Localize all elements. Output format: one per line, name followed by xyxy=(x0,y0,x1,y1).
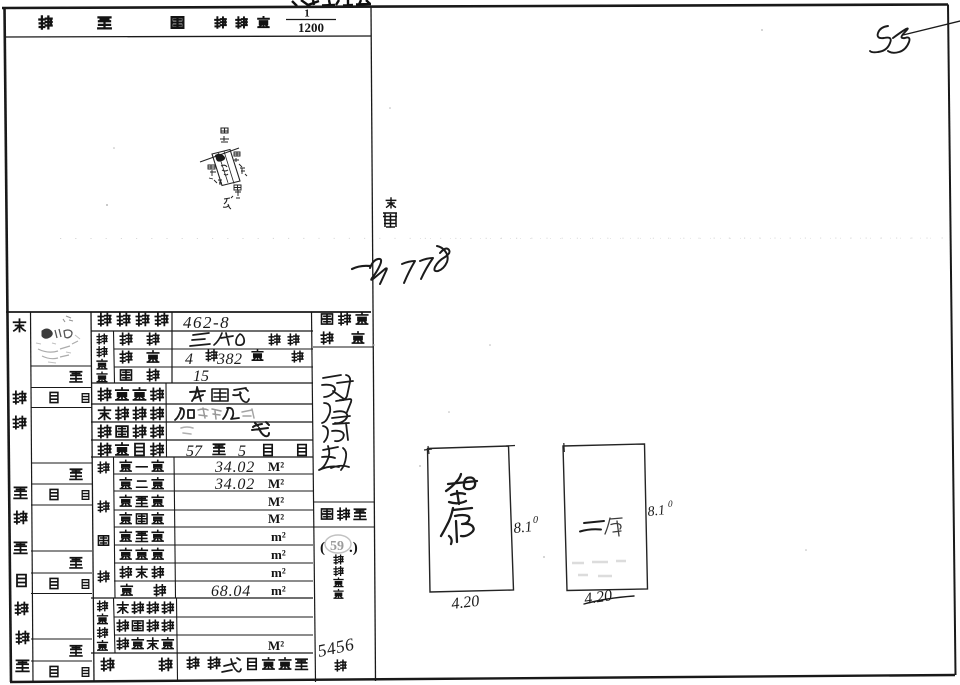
svg-text:462-8: 462-8 xyxy=(183,313,230,332)
svg-text:5: 5 xyxy=(238,443,246,460)
svg-text:4.20: 4.20 xyxy=(450,593,480,613)
svg-text:m²: m² xyxy=(271,565,286,580)
svg-text:1200: 1200 xyxy=(298,20,324,35)
svg-text:68.04: 68.04 xyxy=(211,583,251,600)
svg-text:M²: M² xyxy=(268,494,284,509)
svg-text:59: 59 xyxy=(330,539,344,554)
svg-text:M²: M² xyxy=(268,476,284,491)
svg-text:15: 15 xyxy=(193,368,209,385)
svg-text:M²: M² xyxy=(268,638,284,653)
svg-text:.): .) xyxy=(349,540,358,556)
svg-text:M²: M² xyxy=(268,459,284,474)
svg-text:m²: m² xyxy=(271,583,286,598)
svg-text:57: 57 xyxy=(186,443,203,460)
svg-text:0: 0 xyxy=(668,499,673,509)
svg-text:34.02: 34.02 xyxy=(214,459,255,476)
svg-text:8.1: 8.1 xyxy=(647,503,666,520)
svg-text:0: 0 xyxy=(533,515,538,526)
svg-text:382: 382 xyxy=(216,351,243,368)
svg-text:m²: m² xyxy=(271,529,286,544)
svg-text:(: ( xyxy=(320,540,325,556)
svg-text:M²: M² xyxy=(268,511,284,526)
svg-text:34.02: 34.02 xyxy=(214,476,255,493)
svg-text:8.1: 8.1 xyxy=(513,519,533,537)
svg-text:4: 4 xyxy=(185,351,193,368)
svg-text:1: 1 xyxy=(304,8,310,20)
svg-text:m²: m² xyxy=(271,547,286,562)
